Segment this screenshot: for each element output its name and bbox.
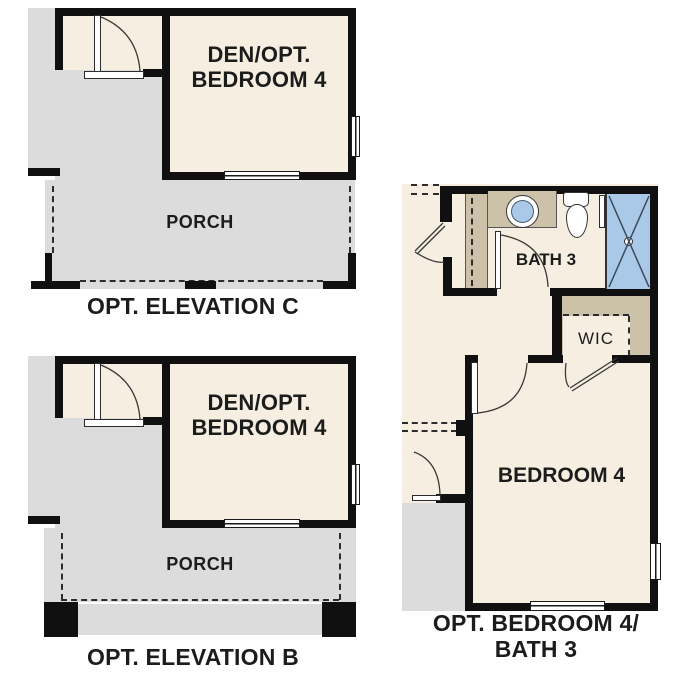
- sink-bowl-icon: [511, 200, 534, 223]
- shower-drain-icon: [624, 237, 633, 246]
- stair-room-floor: [402, 503, 465, 611]
- bath-label: BATH 3: [490, 250, 602, 270]
- wic-label: WIC: [562, 329, 630, 349]
- entry-door-leaf: [94, 363, 101, 420]
- corridor-floor: [55, 70, 162, 180]
- porch-dashed-edge: [61, 599, 339, 601]
- linen-shelf-dashed: [471, 198, 473, 286]
- floor-plan-sheet: DEN/OPT. BEDROOM 4 PORCH OPT. ELEVATION …: [0, 0, 687, 687]
- window: [351, 464, 360, 505]
- caption-line2: BATH 3: [405, 636, 667, 662]
- den-floor: [170, 16, 348, 172]
- den-room-label: DEN/OPT. BEDROOM 4: [170, 42, 348, 93]
- window: [224, 171, 300, 180]
- den-room-label: DEN/OPT. BEDROOM 4: [170, 390, 348, 441]
- porch-post-wall: [348, 253, 356, 282]
- den-floor: [170, 364, 348, 520]
- den-label-line1: DEN/OPT.: [170, 42, 348, 67]
- adjacent-room-floor: [28, 8, 55, 168]
- wall: [55, 8, 63, 70]
- opening-dashed: [411, 184, 439, 186]
- linen-cabinet: [465, 194, 488, 288]
- opening-dashed: [411, 193, 439, 195]
- wall: [552, 296, 562, 358]
- entry-floor: [63, 16, 162, 72]
- porch-label: PORCH: [45, 212, 355, 233]
- porch-corner-post: [322, 602, 356, 637]
- porch-post-wall: [45, 253, 52, 282]
- porch-corner-post: [44, 602, 78, 637]
- plan-caption: OPT. ELEVATION B: [43, 644, 343, 670]
- corridor-floor: [55, 418, 162, 528]
- wall: [162, 356, 170, 528]
- porch-edge-wall: [31, 281, 80, 289]
- wall: [528, 355, 563, 363]
- caption-line1: OPT. BEDROOM 4/: [405, 610, 667, 636]
- porch-label: PORCH: [44, 554, 356, 575]
- den-label-line1: DEN/OPT.: [170, 390, 348, 415]
- porch-step: [78, 604, 322, 635]
- adjacent-room-floor: [28, 356, 55, 516]
- entry-floor: [63, 364, 162, 420]
- wall: [143, 69, 170, 77]
- wall: [162, 8, 170, 180]
- bedroom-label: BEDROOM 4: [465, 464, 658, 488]
- porch-edge-wall: [185, 281, 216, 289]
- shower-glass-wall: [605, 194, 607, 289]
- hall-door-leaf: [412, 495, 441, 501]
- entry-threshold: [84, 419, 144, 427]
- wall: [550, 288, 658, 296]
- entry-threshold: [84, 71, 144, 79]
- opening-dashed: [402, 422, 457, 424]
- opening-dashed: [402, 430, 457, 432]
- entry-door-leaf: [94, 15, 101, 72]
- window: [351, 116, 360, 157]
- wic-shelf-dashed: [563, 314, 629, 316]
- plan-caption: OPT. BEDROOM 4/ BATH 3: [405, 610, 667, 662]
- plan-caption: OPT. ELEVATION C: [43, 293, 343, 319]
- wall: [55, 356, 63, 418]
- window: [650, 543, 661, 580]
- wall: [612, 355, 658, 363]
- window: [224, 519, 300, 528]
- shower-door-leaf: [599, 195, 605, 228]
- wall: [143, 417, 170, 425]
- bedroom-door-leaf: [471, 362, 478, 414]
- wall: [28, 516, 60, 524]
- den-label-line2: BEDROOM 4: [170, 415, 348, 440]
- wall-pilaster: [456, 420, 465, 436]
- den-label-line2: BEDROOM 4: [170, 67, 348, 92]
- wall: [440, 186, 452, 222]
- wall: [28, 168, 60, 176]
- porch-edge-wall: [323, 281, 356, 289]
- wall: [443, 288, 497, 296]
